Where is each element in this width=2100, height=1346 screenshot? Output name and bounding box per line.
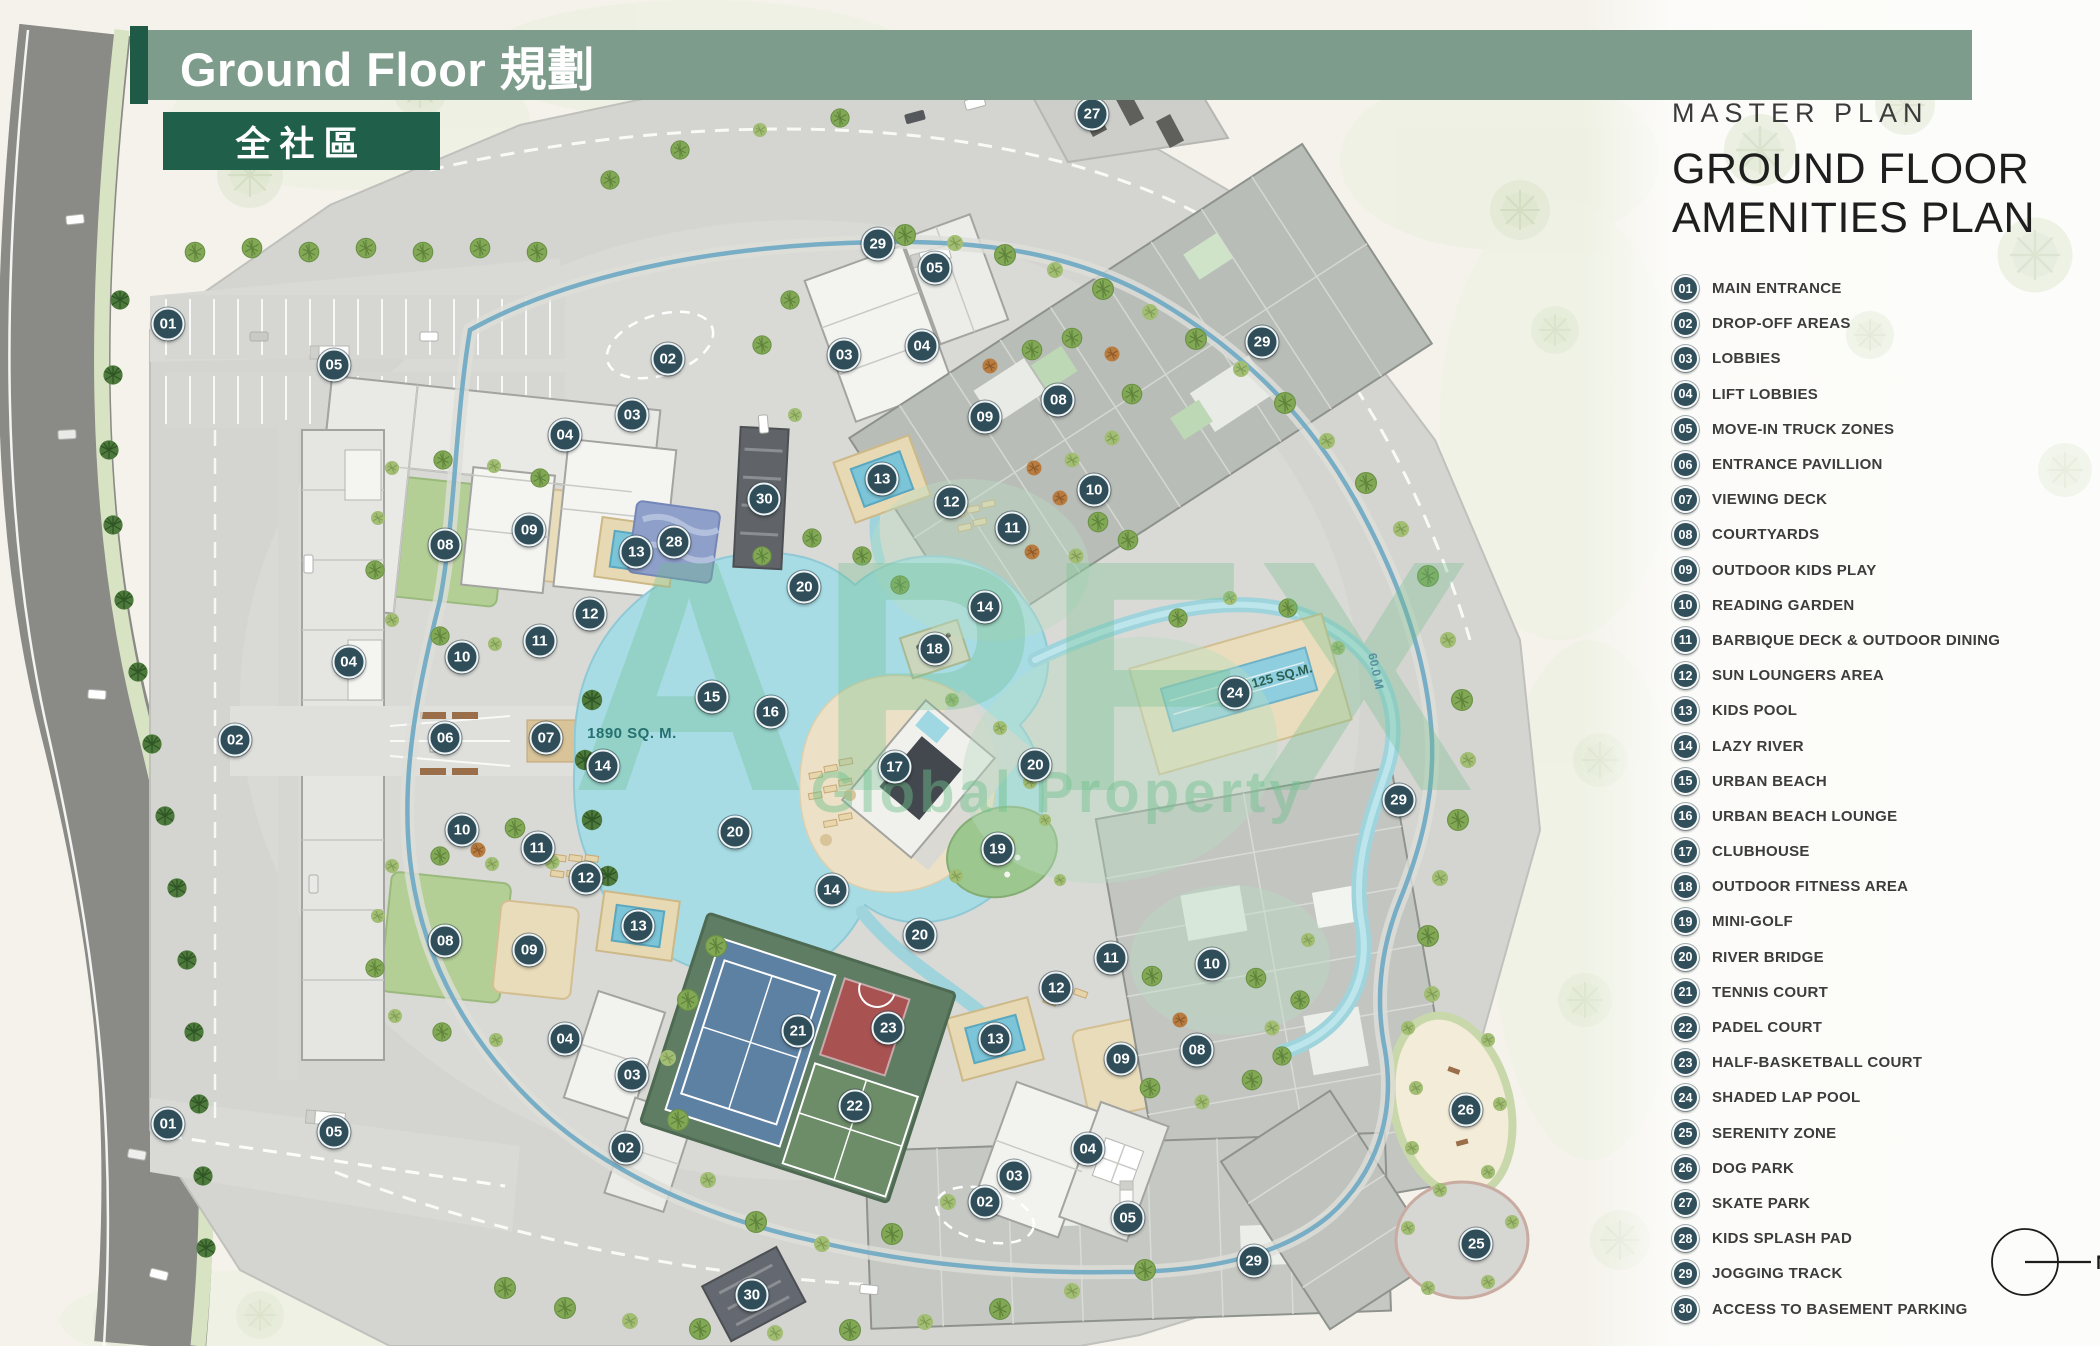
- map-marker: 02: [609, 1132, 642, 1165]
- legend-item-number: 04: [1672, 381, 1699, 408]
- map-marker: 03: [616, 1059, 649, 1092]
- legend-item-label: LOBBIES: [1712, 350, 1781, 367]
- map-marker: 05: [317, 348, 350, 381]
- map-marker: 12: [1040, 971, 1073, 1004]
- legend-item-number: 16: [1672, 803, 1699, 830]
- map-marker-number: 05: [1119, 1210, 1136, 1227]
- map-marker-number: 16: [762, 704, 779, 721]
- legend-item-number: 19: [1672, 908, 1699, 935]
- legend-item-label: TENNIS COURT: [1712, 984, 1828, 1001]
- map-marker: 09: [513, 934, 546, 967]
- legend-item-number: 01: [1672, 275, 1699, 302]
- map-marker-number: 18: [926, 640, 943, 657]
- legend-item-number: 26: [1672, 1155, 1699, 1182]
- map-marker: 12: [569, 861, 602, 894]
- map-marker-number: 08: [437, 932, 454, 949]
- map-marker-number: 11: [532, 632, 548, 649]
- legend-item-number: 30: [1672, 1296, 1699, 1323]
- map-marker: 29: [861, 227, 894, 260]
- map-marker-number: 10: [1203, 955, 1220, 972]
- map-marker-number: 29: [869, 235, 886, 252]
- legend-item-label: KIDS POOL: [1712, 702, 1797, 719]
- map-marker: 04: [548, 418, 581, 451]
- map-marker-number: 13: [987, 1031, 1004, 1048]
- map-marker: 03: [998, 1160, 1031, 1193]
- map-marker-number: 04: [914, 337, 931, 354]
- map-marker-number: 15: [704, 689, 721, 706]
- map-marker: 30: [748, 483, 781, 516]
- map-marker-number: 17: [886, 759, 903, 776]
- legend-item-number: 25: [1672, 1120, 1699, 1147]
- legend-item-number: 13: [1672, 697, 1699, 724]
- legend-item: 15 URBAN BEACH: [1672, 764, 2096, 799]
- map-marker-number: 30: [756, 491, 773, 508]
- map-marker: 26: [1449, 1094, 1482, 1127]
- map-marker: 25: [1460, 1227, 1493, 1260]
- legend-item: 10 READING GARDEN: [1672, 588, 2096, 623]
- map-marker: 20: [788, 570, 821, 603]
- map-marker: 08: [429, 529, 462, 562]
- panel-title: GROUND FLOOR AMENITIES PLAN: [1672, 145, 2096, 243]
- legend-item-number: 17: [1672, 838, 1699, 865]
- legend-item-number: 09: [1672, 557, 1699, 584]
- map-marker-number: 01: [160, 316, 177, 333]
- legend-item: 09 OUTDOOR KIDS PLAY: [1672, 553, 2096, 588]
- legend-item: 05 MOVE-IN TRUCK ZONES: [1672, 412, 2096, 447]
- legend-item-number: 14: [1672, 733, 1699, 760]
- compass-north-label: N: [2096, 1253, 2100, 1274]
- map-marker-number: 05: [926, 259, 943, 276]
- map-marker: 28: [658, 526, 691, 559]
- map-marker: 14: [968, 591, 1001, 624]
- legend-item-label: SHADED LAP POOL: [1712, 1089, 1860, 1106]
- map-marker-number: 02: [227, 732, 244, 749]
- map-marker-number: 09: [521, 522, 538, 539]
- map-marker-number: 10: [1086, 481, 1103, 498]
- map-marker: 29: [1382, 783, 1415, 816]
- legend-item: 14 LAZY RIVER: [1672, 728, 2096, 763]
- map-marker: 27: [1076, 98, 1109, 131]
- legend-item-number: 20: [1672, 944, 1699, 971]
- page-title: Ground Floor 規劃: [180, 31, 595, 100]
- map-marker-number: 20: [796, 578, 813, 595]
- map-marker-number: 23: [880, 1020, 897, 1037]
- map-marker-number: 13: [628, 543, 645, 560]
- legend-item: 25 SERENITY ZONE: [1672, 1116, 2096, 1151]
- map-marker: 02: [219, 724, 252, 757]
- header-accent-stripe: [130, 26, 148, 104]
- map-marker-number: 27: [1084, 106, 1101, 123]
- map-marker: 13: [979, 1023, 1012, 1056]
- map-marker: 11: [1094, 942, 1127, 975]
- legend-item: 07 VIEWING DECK: [1672, 482, 2096, 517]
- map-marker: 05: [1111, 1202, 1144, 1235]
- legend-item: 19 MINI-GOLF: [1672, 904, 2096, 939]
- map-marker: 10: [1078, 473, 1111, 506]
- map-marker: 24: [1218, 677, 1251, 710]
- map-marker-number: 04: [557, 1031, 574, 1048]
- legend-item: 23 HALF-BASKETBALL COURT: [1672, 1045, 2096, 1080]
- map-marker-number: 05: [326, 356, 343, 373]
- legend-item: 13 KIDS POOL: [1672, 693, 2096, 728]
- north-compass: N: [1985, 1222, 2100, 1302]
- map-marker-number: 28: [666, 534, 683, 551]
- map-marker-number: 11: [1103, 950, 1119, 967]
- legend-item-label: PADEL COURT: [1712, 1019, 1822, 1036]
- legend-item: 12 SUN LOUNGERS AREA: [1672, 658, 2096, 693]
- map-marker-number: 14: [594, 757, 611, 774]
- map-marker-number: 10: [454, 648, 471, 665]
- legend-item: 11 BARBIQUE DECK & OUTDOOR DINING: [1672, 623, 2096, 658]
- legend-item-label: SUN LOUNGERS AREA: [1712, 667, 1884, 684]
- legend-item-label: CLUBHOUSE: [1712, 843, 1810, 860]
- map-marker: 30: [735, 1278, 768, 1311]
- legend-item: 08 COURTYARDS: [1672, 517, 2096, 552]
- legend-item-label: LAZY RIVER: [1712, 738, 1804, 755]
- map-marker-number: 19: [989, 841, 1006, 858]
- legend-item-label: DROP-OFF AREAS: [1712, 315, 1851, 332]
- map-marker-number: 03: [1006, 1168, 1023, 1185]
- map-marker-number: 09: [977, 409, 994, 426]
- legend-item: 26 DOG PARK: [1672, 1151, 2096, 1186]
- map-marker-number: 02: [659, 351, 676, 368]
- map-marker: 11: [521, 831, 554, 864]
- map-marker: 09: [968, 401, 1001, 434]
- legend-item: 16 URBAN BEACH LOUNGE: [1672, 799, 2096, 834]
- map-marker-number: 05: [326, 1123, 343, 1140]
- legend-list: 01 MAIN ENTRANCE 02 DROP-OFF AREAS 03 LO…: [1672, 271, 2096, 1327]
- panel-kicker: MASTER PLAN: [1672, 98, 2096, 129]
- map-marker: 29: [1237, 1245, 1270, 1278]
- map-marker-number: 08: [1050, 391, 1067, 408]
- map-marker-number: 12: [1048, 979, 1065, 996]
- legend-item-label: LIFT LOBBIES: [1712, 386, 1818, 403]
- map-marker: 01: [152, 1107, 185, 1140]
- map-marker-number: 20: [1027, 756, 1044, 773]
- map-marker-number: 04: [340, 654, 357, 671]
- legend-item-number: 22: [1672, 1014, 1699, 1041]
- community-badge: 全社區: [163, 112, 440, 170]
- map-marker-number: 13: [874, 471, 891, 488]
- map-marker: 22: [838, 1090, 871, 1123]
- legend-item-label: OUTDOOR FITNESS AREA: [1712, 878, 1908, 895]
- legend-item-number: 03: [1672, 345, 1699, 372]
- legend-item-label: JOGGING TRACK: [1712, 1265, 1843, 1282]
- map-marker-number: 20: [911, 927, 928, 944]
- legend-item-label: MINI-GOLF: [1712, 913, 1793, 930]
- map-marker-number: 08: [1189, 1041, 1206, 1058]
- legend-item-label: URBAN BEACH LOUNGE: [1712, 808, 1897, 825]
- map-marker-number: 12: [943, 494, 960, 511]
- legend-item-label: VIEWING DECK: [1712, 491, 1827, 508]
- legend-item-label: KIDS SPLASH PAD: [1712, 1230, 1852, 1247]
- legend-item: 21 TENNIS COURT: [1672, 975, 2096, 1010]
- legend-item: 04 LIFT LOBBIES: [1672, 377, 2096, 412]
- legend-item: 27 SKATE PARK: [1672, 1186, 2096, 1221]
- map-marker: 16: [754, 696, 787, 729]
- legend-item: 02 DROP-OFF AREAS: [1672, 306, 2096, 341]
- legend-item-label: URBAN BEACH: [1712, 773, 1827, 790]
- legend-item-number: 12: [1672, 662, 1699, 689]
- map-marker-number: 02: [977, 1193, 994, 1210]
- map-marker: 14: [815, 873, 848, 906]
- map-marker-number: 02: [617, 1140, 634, 1157]
- map-marker: 04: [1071, 1133, 1104, 1166]
- legend-item-number: 29: [1672, 1260, 1699, 1287]
- map-marker: 08: [1181, 1033, 1214, 1066]
- map-marker: 20: [903, 919, 936, 952]
- legend-item-label: RIVER BRIDGE: [1712, 949, 1824, 966]
- map-marker: 17: [878, 751, 911, 784]
- legend-item-label: HALF-BASKETBALL COURT: [1712, 1054, 1922, 1071]
- map-marker: 02: [651, 343, 684, 376]
- legend-item-label: ACCESS TO BASEMENT PARKING: [1712, 1301, 1968, 1318]
- legend-item-label: OUTDOOR KIDS PLAY: [1712, 562, 1877, 579]
- legend-item: 20 RIVER BRIDGE: [1672, 940, 2096, 975]
- map-marker: 12: [574, 597, 607, 630]
- map-marker: 09: [513, 514, 546, 547]
- map-marker: 20: [719, 815, 752, 848]
- map-marker-number: 12: [578, 869, 595, 886]
- map-marker: 15: [695, 681, 728, 714]
- legend-item-number: 15: [1672, 768, 1699, 795]
- map-marker: 01: [152, 308, 185, 341]
- header-bar: Ground Floor 規劃: [148, 30, 1972, 100]
- map-marker-number: 03: [836, 347, 853, 364]
- map-marker: 08: [1042, 383, 1075, 416]
- legend-item-number: 05: [1672, 416, 1699, 443]
- legend-item: 18 OUTDOOR FITNESS AREA: [1672, 869, 2096, 904]
- map-marker: 21: [782, 1015, 815, 1048]
- map-marker: 18: [918, 632, 951, 665]
- map-marker-number: 20: [727, 823, 744, 840]
- legend-item-label: MOVE-IN TRUCK ZONES: [1712, 421, 1894, 438]
- legend-item-number: 10: [1672, 592, 1699, 619]
- legend-item-number: 06: [1672, 451, 1699, 478]
- map-marker: 23: [872, 1012, 905, 1045]
- legend-item: 22 PADEL COURT: [1672, 1010, 2096, 1045]
- map-marker: 29: [1246, 325, 1279, 358]
- map-marker: 20: [1019, 748, 1052, 781]
- map-marker-number: 04: [1079, 1141, 1096, 1158]
- map-marker-number: 12: [582, 605, 599, 622]
- map-marker-number: 13: [630, 918, 647, 935]
- legend-item-number: 24: [1672, 1084, 1699, 1111]
- map-marker: 05: [317, 1115, 350, 1148]
- map-marker-number: 11: [1004, 519, 1020, 536]
- map-marker: 07: [530, 721, 563, 754]
- legend-item: 24 SHADED LAP POOL: [1672, 1080, 2096, 1115]
- legend-item-label: BARBIQUE DECK & OUTDOOR DINING: [1712, 632, 2000, 649]
- legend-item-number: 02: [1672, 310, 1699, 337]
- legend-item-label: SKATE PARK: [1712, 1195, 1810, 1212]
- map-marker: 13: [620, 535, 653, 568]
- map-marker: 14: [586, 749, 619, 782]
- map-marker: 04: [905, 329, 938, 362]
- legend-item: 03 LOBBIES: [1672, 341, 2096, 376]
- map-marker: 13: [622, 910, 655, 943]
- map-marker: 06: [429, 721, 462, 754]
- map-marker-number: 04: [557, 426, 574, 443]
- panel-title-line2: AMENITIES PLAN: [1672, 194, 2096, 243]
- map-marker-number: 09: [1113, 1051, 1130, 1068]
- map-marker-number: 14: [823, 881, 840, 898]
- map-marker-number: 30: [743, 1286, 760, 1303]
- map-marker-number: 22: [846, 1098, 863, 1115]
- map-marker: 12: [935, 486, 968, 519]
- map-marker: 19: [981, 833, 1014, 866]
- legend-item-number: 23: [1672, 1049, 1699, 1076]
- map-marker-number: 03: [624, 1067, 641, 1084]
- map-marker: 09: [1105, 1043, 1138, 1076]
- map-marker: 11: [523, 624, 556, 657]
- legend-item-number: 28: [1672, 1225, 1699, 1252]
- legend-item-number: 08: [1672, 521, 1699, 548]
- legend-item-label: SERENITY ZONE: [1712, 1125, 1836, 1142]
- legend-item: 01 MAIN ENTRANCE: [1672, 271, 2096, 306]
- map-marker-number: 06: [437, 729, 454, 746]
- legend-item: 06 ENTRANCE PAVILLION: [1672, 447, 2096, 482]
- map-marker-number: 25: [1468, 1235, 1485, 1252]
- page: { "header": { "title": "Ground Floor 規劃"…: [0, 0, 2100, 1346]
- map-marker-number: 11: [530, 839, 546, 856]
- map-marker: 13: [866, 463, 899, 496]
- map-marker: 04: [548, 1023, 581, 1056]
- map-marker-number: 26: [1457, 1102, 1474, 1119]
- map-marker: 03: [616, 398, 649, 431]
- legend-item-number: 07: [1672, 486, 1699, 513]
- legend-item-label: COURTYARDS: [1712, 526, 1819, 543]
- map-marker-number: 29: [1245, 1253, 1262, 1270]
- map-marker-number: 09: [521, 942, 538, 959]
- map-marker: 10: [446, 640, 479, 673]
- legend-item-number: 11: [1672, 627, 1699, 654]
- map-marker-number: 24: [1226, 685, 1243, 702]
- map-marker: 02: [968, 1185, 1001, 1218]
- legend-item-label: ENTRANCE PAVILLION: [1712, 456, 1883, 473]
- legend-panel: MASTER PLAN GROUND FLOOR AMENITIES PLAN …: [1672, 98, 2096, 1327]
- map-marker-number: 01: [160, 1115, 177, 1132]
- map-marker: 10: [446, 814, 479, 847]
- map-marker-number: 21: [790, 1023, 807, 1040]
- map-marker-number: 07: [538, 729, 555, 746]
- map-marker-number: 08: [437, 537, 454, 554]
- map-marker: 05: [918, 251, 951, 284]
- map-marker: 11: [996, 511, 1029, 544]
- map-marker-number: 03: [624, 406, 641, 423]
- map-marker: 04: [332, 646, 365, 679]
- legend-item-label: READING GARDEN: [1712, 597, 1855, 614]
- map-marker: 10: [1195, 947, 1228, 980]
- legend-item-number: 27: [1672, 1190, 1699, 1217]
- map-marker-number: 14: [977, 599, 994, 616]
- map-marker-number: 29: [1254, 333, 1271, 350]
- panel-title-line1: GROUND FLOOR: [1672, 145, 2096, 194]
- legend-item-label: DOG PARK: [1712, 1160, 1794, 1177]
- map-marker: 08: [429, 924, 462, 957]
- legend-item-number: 18: [1672, 873, 1699, 900]
- map-marker-number: 29: [1390, 791, 1407, 808]
- map-marker-number: 10: [454, 822, 471, 839]
- legend-item-label: MAIN ENTRANCE: [1712, 280, 1842, 297]
- legend-item: 17 CLUBHOUSE: [1672, 834, 2096, 869]
- legend-item-number: 21: [1672, 979, 1699, 1006]
- map-marker: 03: [828, 339, 861, 372]
